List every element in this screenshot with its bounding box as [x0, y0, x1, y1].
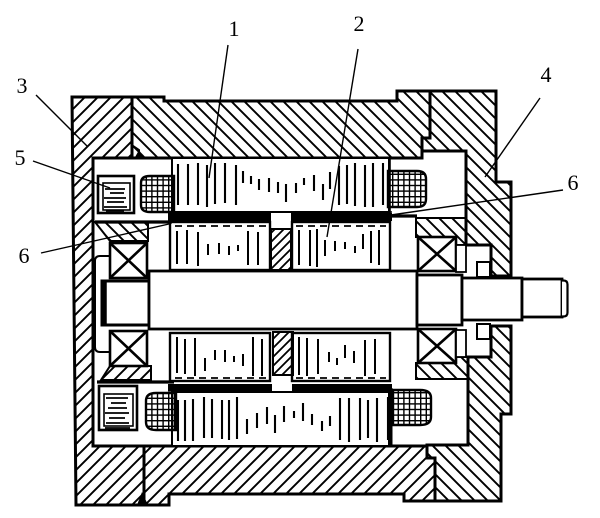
- svg-text:5: 5: [15, 145, 26, 170]
- svg-text:3: 3: [17, 73, 28, 98]
- svg-text:6: 6: [568, 170, 579, 195]
- svg-text:6: 6: [19, 243, 30, 268]
- svg-text:4: 4: [541, 62, 552, 87]
- svg-text:1: 1: [229, 16, 240, 41]
- svg-text:2: 2: [354, 11, 365, 36]
